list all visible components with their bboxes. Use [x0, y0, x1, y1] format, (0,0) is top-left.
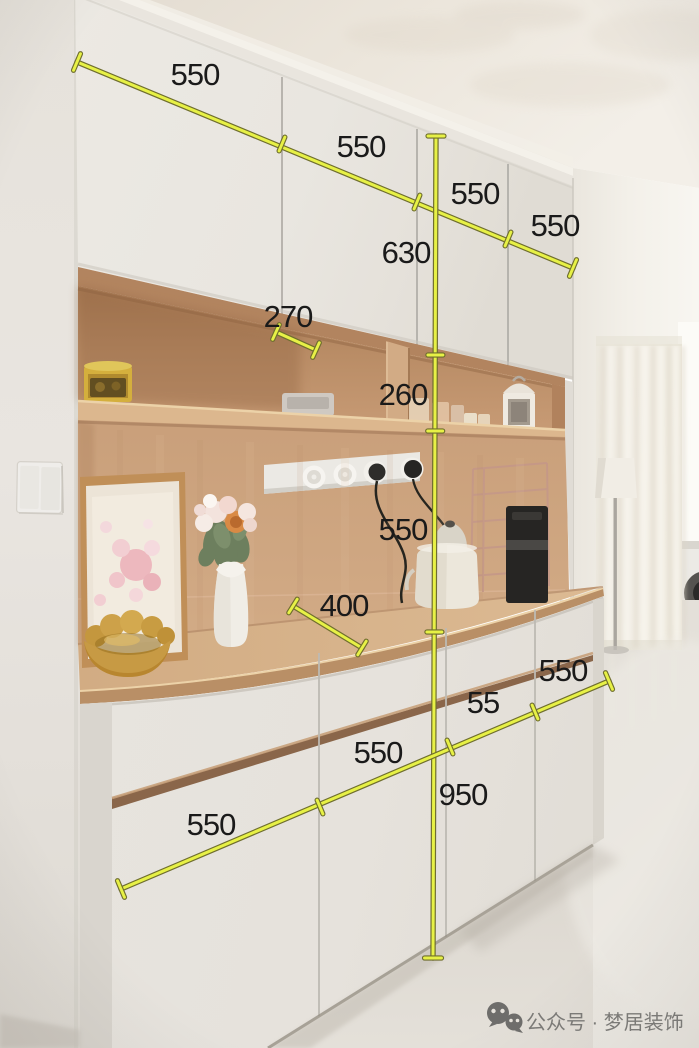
svg-text:550: 550 — [171, 57, 220, 92]
svg-text:270: 270 — [264, 299, 313, 334]
svg-text:550: 550 — [379, 512, 428, 547]
svg-text:950: 950 — [439, 777, 488, 812]
svg-text:550: 550 — [539, 653, 588, 688]
svg-text:550: 550 — [337, 129, 386, 164]
svg-text:550: 550 — [354, 735, 403, 770]
svg-text:公众号 · 梦居装饰: 公众号 · 梦居装饰 — [526, 1011, 684, 1034]
svg-text:550: 550 — [451, 176, 500, 211]
svg-text:550: 550 — [187, 807, 236, 842]
svg-text:400: 400 — [320, 588, 369, 623]
svg-text:630: 630 — [382, 235, 431, 270]
svg-text:55: 55 — [467, 685, 499, 720]
svg-text:550: 550 — [531, 208, 580, 243]
svg-text:260: 260 — [379, 377, 428, 412]
